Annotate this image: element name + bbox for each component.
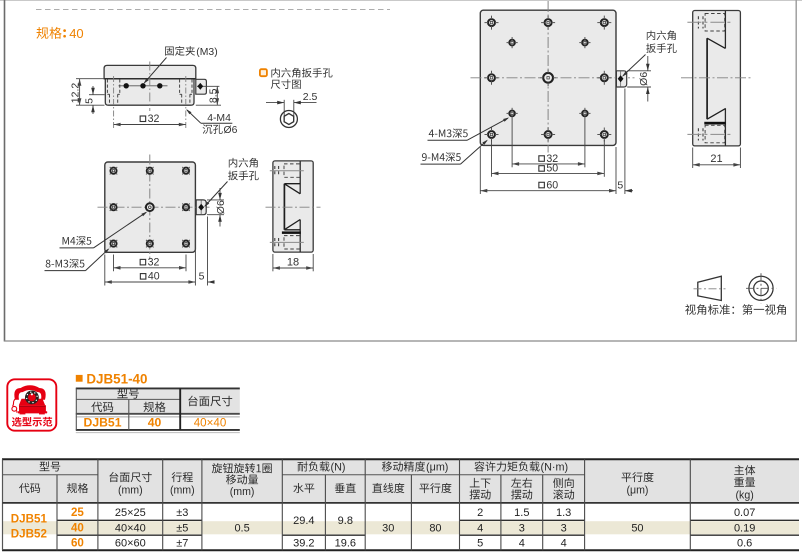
svg-text:3: 3 [519, 522, 525, 534]
svg-text:60: 60 [71, 536, 84, 549]
svg-text:0.5: 0.5 [234, 522, 249, 534]
svg-text:4: 4 [561, 537, 567, 549]
svg-text:1.3: 1.3 [556, 507, 571, 519]
svg-text:30: 30 [382, 522, 394, 534]
svg-text:DJB51-40: DJB51-40 [86, 372, 147, 387]
svg-text:(mm): (mm) [230, 486, 255, 498]
svg-text:4: 4 [477, 522, 483, 534]
svg-text:5: 5 [83, 98, 95, 104]
svg-text:32: 32 [148, 256, 160, 268]
svg-text:4-M4: 4-M4 [207, 113, 231, 124]
svg-text:60: 60 [546, 179, 558, 191]
svg-text:0.6: 0.6 [737, 537, 752, 549]
svg-text:18: 18 [287, 257, 299, 269]
svg-text:4: 4 [519, 537, 525, 549]
svg-text:40: 40 [148, 271, 160, 283]
svg-text:40: 40 [69, 26, 83, 41]
svg-text:Ø6: Ø6 [224, 125, 238, 136]
svg-text:2.5: 2.5 [303, 91, 318, 103]
svg-text:40×40: 40×40 [115, 522, 146, 534]
svg-text:(N): (N) [331, 462, 346, 474]
svg-text:Ø6: Ø6 [638, 72, 650, 86]
svg-text:50: 50 [631, 522, 643, 534]
svg-text:8.5: 8.5 [207, 88, 219, 103]
svg-text:DJB51: DJB51 [11, 513, 48, 526]
svg-text:25: 25 [71, 506, 84, 519]
svg-text:0.07: 0.07 [734, 507, 755, 519]
svg-text:Ø6: Ø6 [215, 200, 227, 214]
svg-text:12.2: 12.2 [69, 83, 81, 104]
svg-text:1.5: 1.5 [514, 507, 529, 519]
svg-text:25×25: 25×25 [115, 507, 146, 519]
svg-text:21: 21 [710, 153, 722, 165]
svg-text:2: 2 [477, 507, 483, 519]
svg-text:3: 3 [561, 522, 567, 534]
svg-text:(kg): (kg) [736, 489, 754, 501]
svg-text:DJB51: DJB51 [84, 415, 122, 429]
svg-text:(N·m): (N·m) [541, 462, 569, 474]
svg-text:(μm): (μm) [626, 485, 648, 497]
svg-text:9.8: 9.8 [338, 515, 353, 527]
svg-text:40×40: 40×40 [194, 416, 227, 429]
svg-text:5: 5 [477, 537, 483, 549]
svg-text:(μm): (μm) [426, 462, 448, 474]
svg-text:40: 40 [148, 415, 162, 429]
svg-text:29.4: 29.4 [293, 515, 314, 527]
svg-text:5: 5 [617, 179, 623, 191]
svg-text:±5: ±5 [176, 522, 188, 534]
svg-text:5: 5 [199, 271, 205, 283]
svg-text:DJB52: DJB52 [11, 528, 47, 541]
svg-text:50: 50 [546, 163, 558, 175]
svg-text:60×60: 60×60 [115, 537, 146, 549]
svg-text:(M3): (M3) [196, 47, 217, 58]
svg-text:(mm): (mm) [170, 485, 195, 497]
svg-text:(mm): (mm) [118, 485, 143, 497]
svg-text:80: 80 [429, 522, 441, 534]
svg-text:39.2: 39.2 [293, 537, 314, 549]
svg-text:19.6: 19.6 [335, 537, 356, 549]
svg-text:40: 40 [71, 521, 84, 534]
svg-text:32: 32 [148, 113, 160, 125]
svg-text:±3: ±3 [176, 507, 188, 519]
svg-text:0.19: 0.19 [734, 522, 755, 534]
svg-text:±7: ±7 [176, 537, 188, 549]
